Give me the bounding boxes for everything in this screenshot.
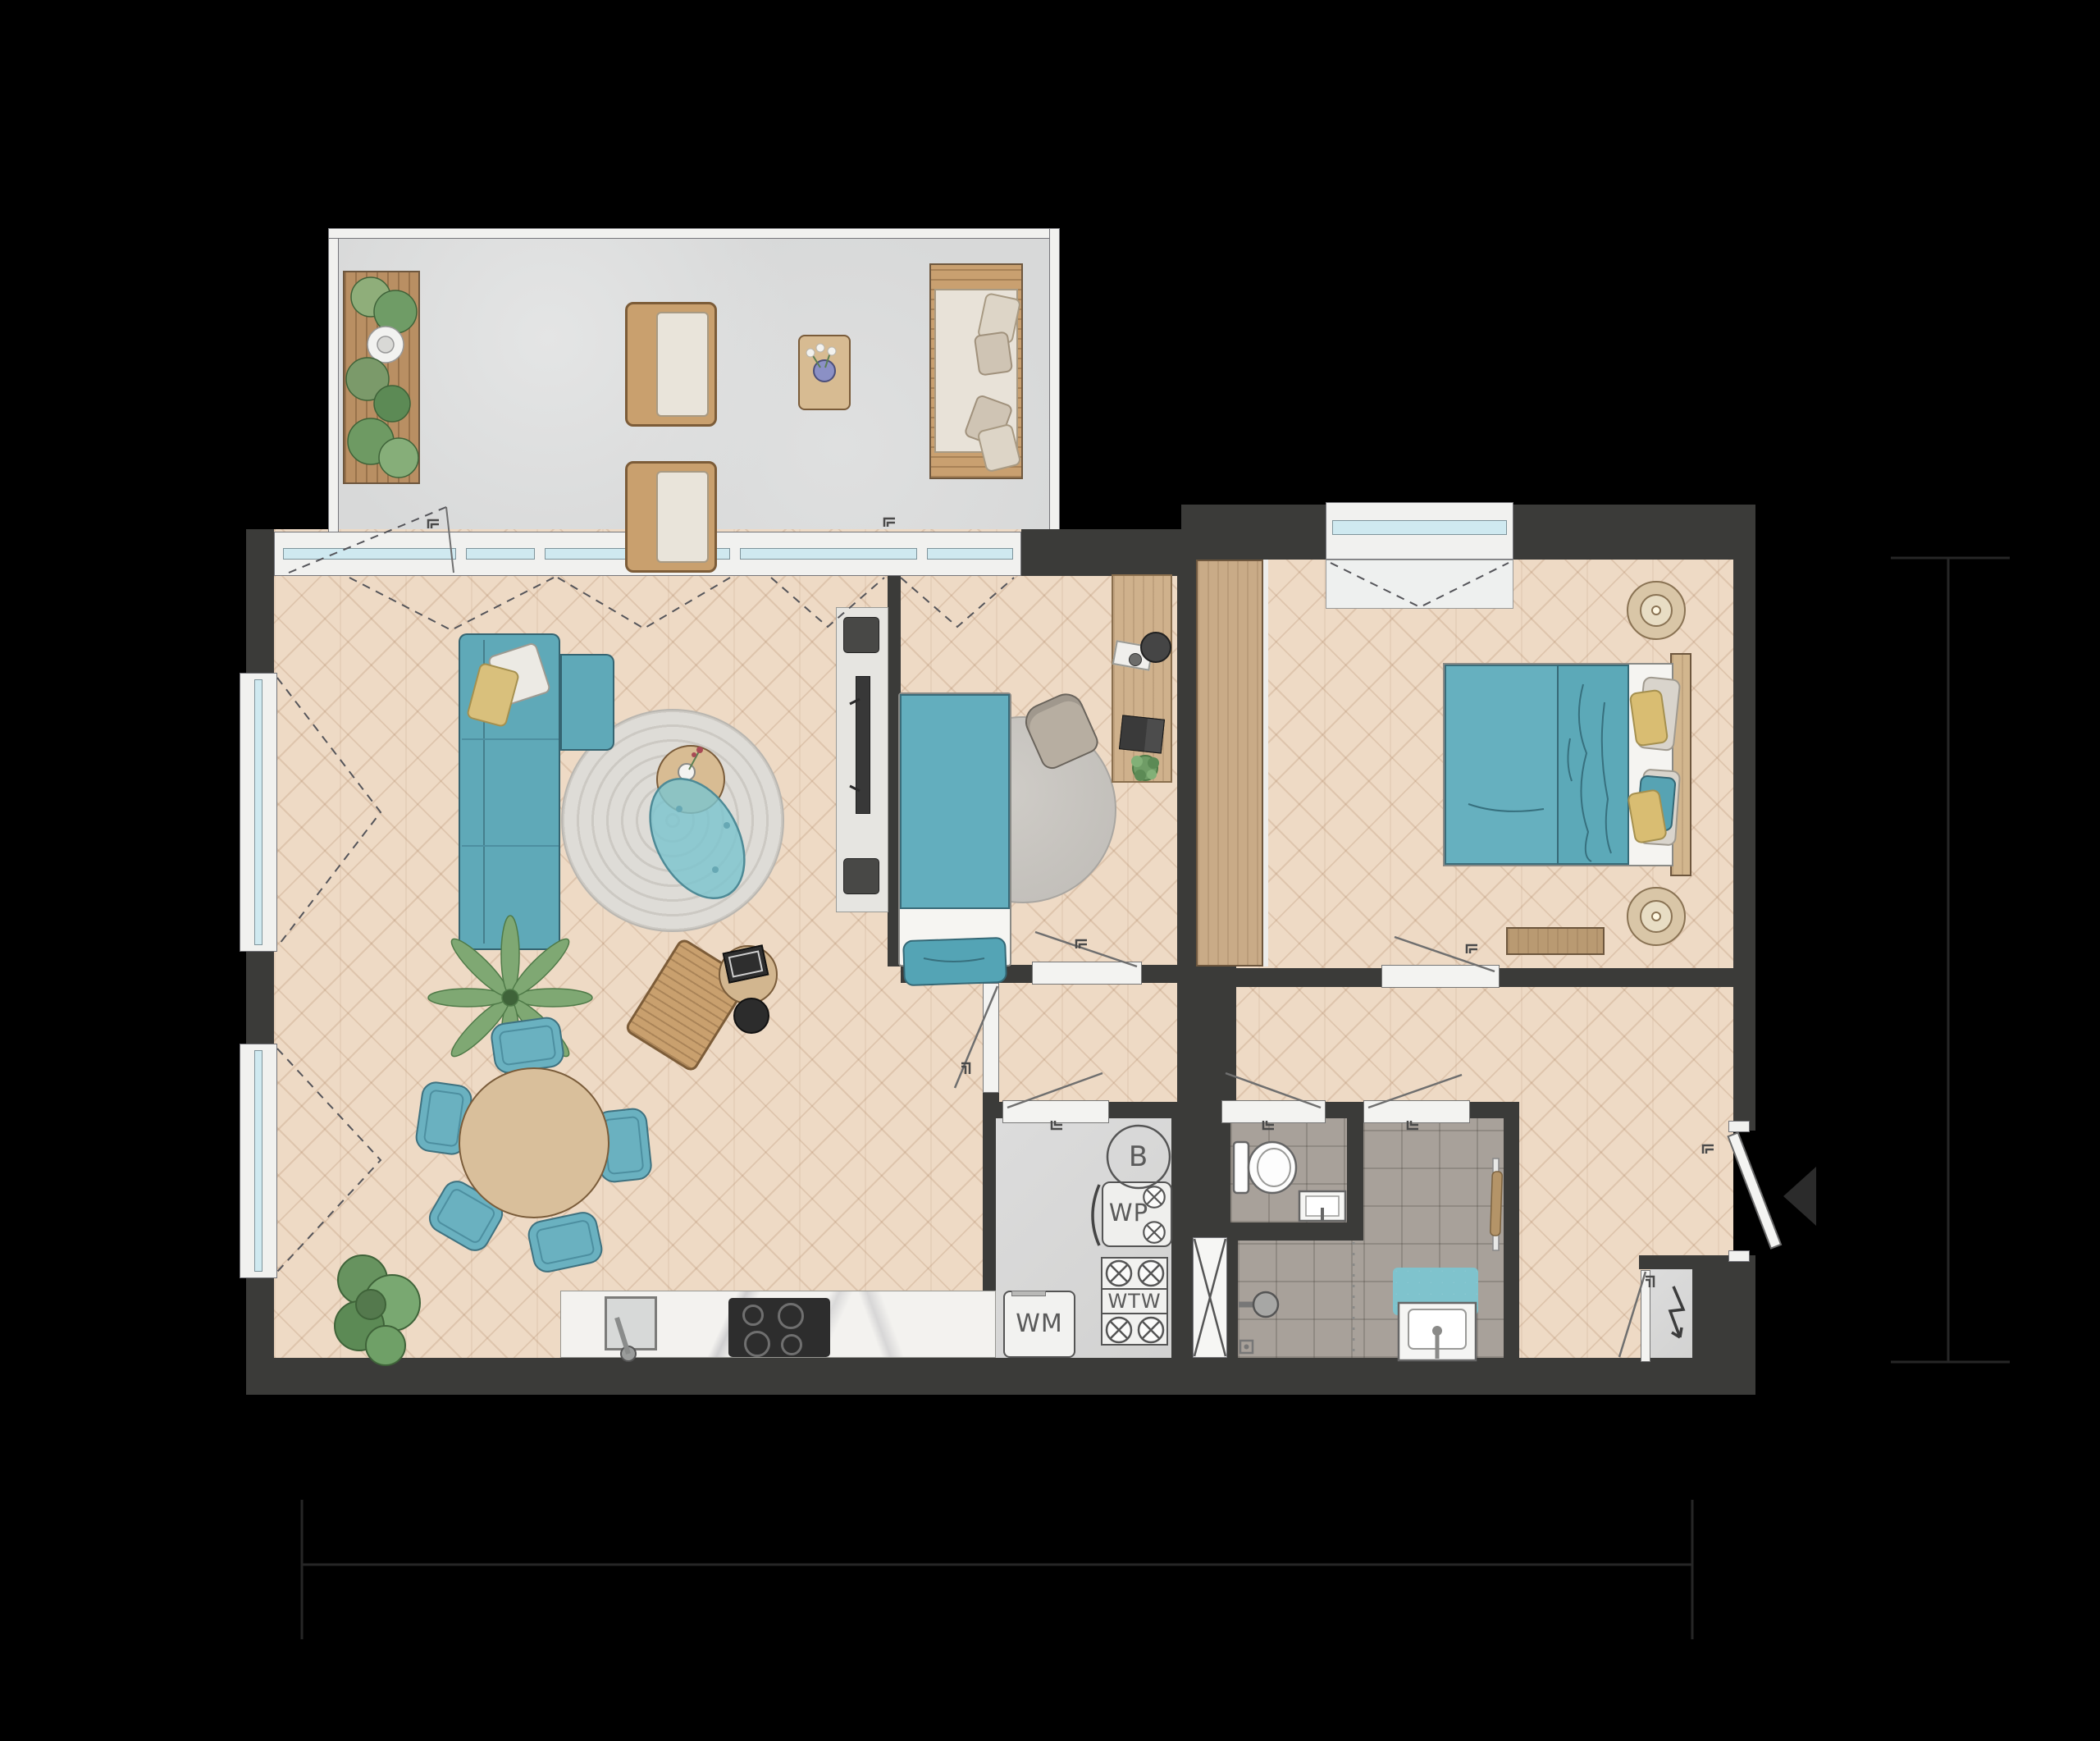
- burner-icon: [778, 1303, 804, 1329]
- wall-right-of-shaft: [1227, 1237, 1238, 1358]
- balcony-wall-left: [328, 228, 339, 574]
- wall-bedroom2-bottom-right: [1500, 968, 1733, 987]
- daybed-pillow: [974, 331, 1014, 376]
- burner-icon: [744, 1331, 770, 1357]
- heat-recovery-label: WTW: [1102, 1290, 1166, 1313]
- wall-above-shaft: [1193, 1118, 1230, 1237]
- toilet-door-threshold: [1221, 1100, 1326, 1123]
- living-window-1-glass: [254, 679, 262, 945]
- coffee-table-vase: [678, 763, 696, 781]
- balcony-wall-right: [1049, 228, 1060, 574]
- wall-technical-right: [1171, 1118, 1193, 1358]
- sofa-cushion-line: [462, 845, 559, 847]
- sofa-cushion-line: [462, 738, 559, 740]
- dining-chair: [489, 1015, 566, 1075]
- wall-bathroom-right: [1504, 1102, 1519, 1358]
- boiler-label: B: [1122, 1140, 1155, 1173]
- desk-laptop: [1119, 715, 1165, 753]
- speaker-top: [843, 617, 879, 653]
- floor-plan: B WP WTW WM: [0, 0, 2100, 1741]
- bedroom1-door-threshold: [1032, 962, 1142, 985]
- balcony-chair-cushion: [656, 312, 709, 417]
- bedroom2-door-threshold: [1381, 965, 1500, 988]
- sofa-chaise: [560, 654, 614, 751]
- wall-toilet-bottom: [1230, 1222, 1363, 1241]
- duct-shaft: [1193, 1237, 1227, 1358]
- meter-cupboard-floor: [1650, 1269, 1692, 1364]
- kitchen-cooktop: [728, 1298, 830, 1357]
- speaker-bottom: [843, 858, 879, 894]
- balcony-wall-top: [328, 228, 1060, 239]
- kitchen-sink: [605, 1296, 657, 1350]
- glazing-glass-5: [927, 548, 1013, 560]
- dining-table: [459, 1067, 609, 1218]
- toilet-floor: [1230, 1118, 1347, 1222]
- heat-recovery-divider: [1102, 1313, 1166, 1314]
- wall-bedroom2-bottom-left: [1236, 968, 1381, 987]
- meter-door-frame: [1641, 1270, 1650, 1362]
- washing-machine-drawer: [1011, 1291, 1046, 1296]
- balcony-planter: [343, 271, 420, 484]
- living-window-2-glass: [254, 1050, 262, 1272]
- front-door-leaf: [1728, 1133, 1781, 1249]
- front-door-cap-top: [1728, 1121, 1750, 1132]
- desk-lamp: [1140, 632, 1171, 663]
- technical-door-threshold: [1002, 1100, 1109, 1123]
- balcony-table-vase: [813, 359, 836, 382]
- tv-screen: [856, 676, 870, 814]
- wardrobe: [1196, 560, 1263, 966]
- bathroom-floor: [1363, 1118, 1504, 1358]
- entrance-arrow-icon: [1783, 1167, 1816, 1226]
- wall-above-meter: [1639, 1255, 1692, 1269]
- bedroom2-duvet teal: [1445, 665, 1559, 865]
- wall-right-upper: [1733, 505, 1755, 1131]
- wall-top-bedroom1: [1021, 529, 1203, 576]
- floor-lamp: [733, 998, 769, 1034]
- bedroom2-window-sill: [1326, 560, 1513, 609]
- nightstand-lamp-center: [1651, 912, 1661, 921]
- bedroom2-bench: [1506, 927, 1605, 955]
- bedroom2-window-glass: [1332, 520, 1507, 535]
- wall-corridor-seg2: [1109, 1102, 1221, 1118]
- wall-block-shaft: [1177, 966, 1236, 1117]
- heat-pump-label: WP: [1106, 1198, 1152, 1227]
- burner-icon: [742, 1305, 764, 1326]
- desk-lamp-base: [1129, 653, 1142, 666]
- bedroom1-pillow: [902, 937, 1007, 986]
- bedroom2-duvet-folded: [1557, 665, 1629, 865]
- hall-door-frame: [983, 983, 999, 1093]
- bath-mat: [1393, 1268, 1478, 1315]
- wall-bedroom1-right: [1177, 576, 1196, 966]
- bedroom1-duvet teal: [900, 694, 1010, 909]
- burner-icon: [781, 1334, 802, 1355]
- shower-floor: [1238, 1241, 1363, 1358]
- bathroom-door-threshold: [1363, 1100, 1470, 1123]
- front-door-cap-bottom: [1728, 1250, 1750, 1262]
- balcony-chair-cushion: [656, 471, 709, 563]
- nightstand-lamp-center: [1651, 605, 1661, 615]
- glazing-glass-4: [740, 548, 917, 560]
- wall-hall-stub: [983, 1093, 999, 1118]
- wall-bottom: [246, 1358, 1755, 1395]
- wall-toilet-right: [1347, 1102, 1363, 1222]
- wardrobe-front-edge: [1263, 560, 1268, 966]
- glazing-glass-2: [466, 548, 535, 560]
- glazing-glass-1: [283, 548, 456, 560]
- washing-machine-label: WM: [1013, 1308, 1066, 1339]
